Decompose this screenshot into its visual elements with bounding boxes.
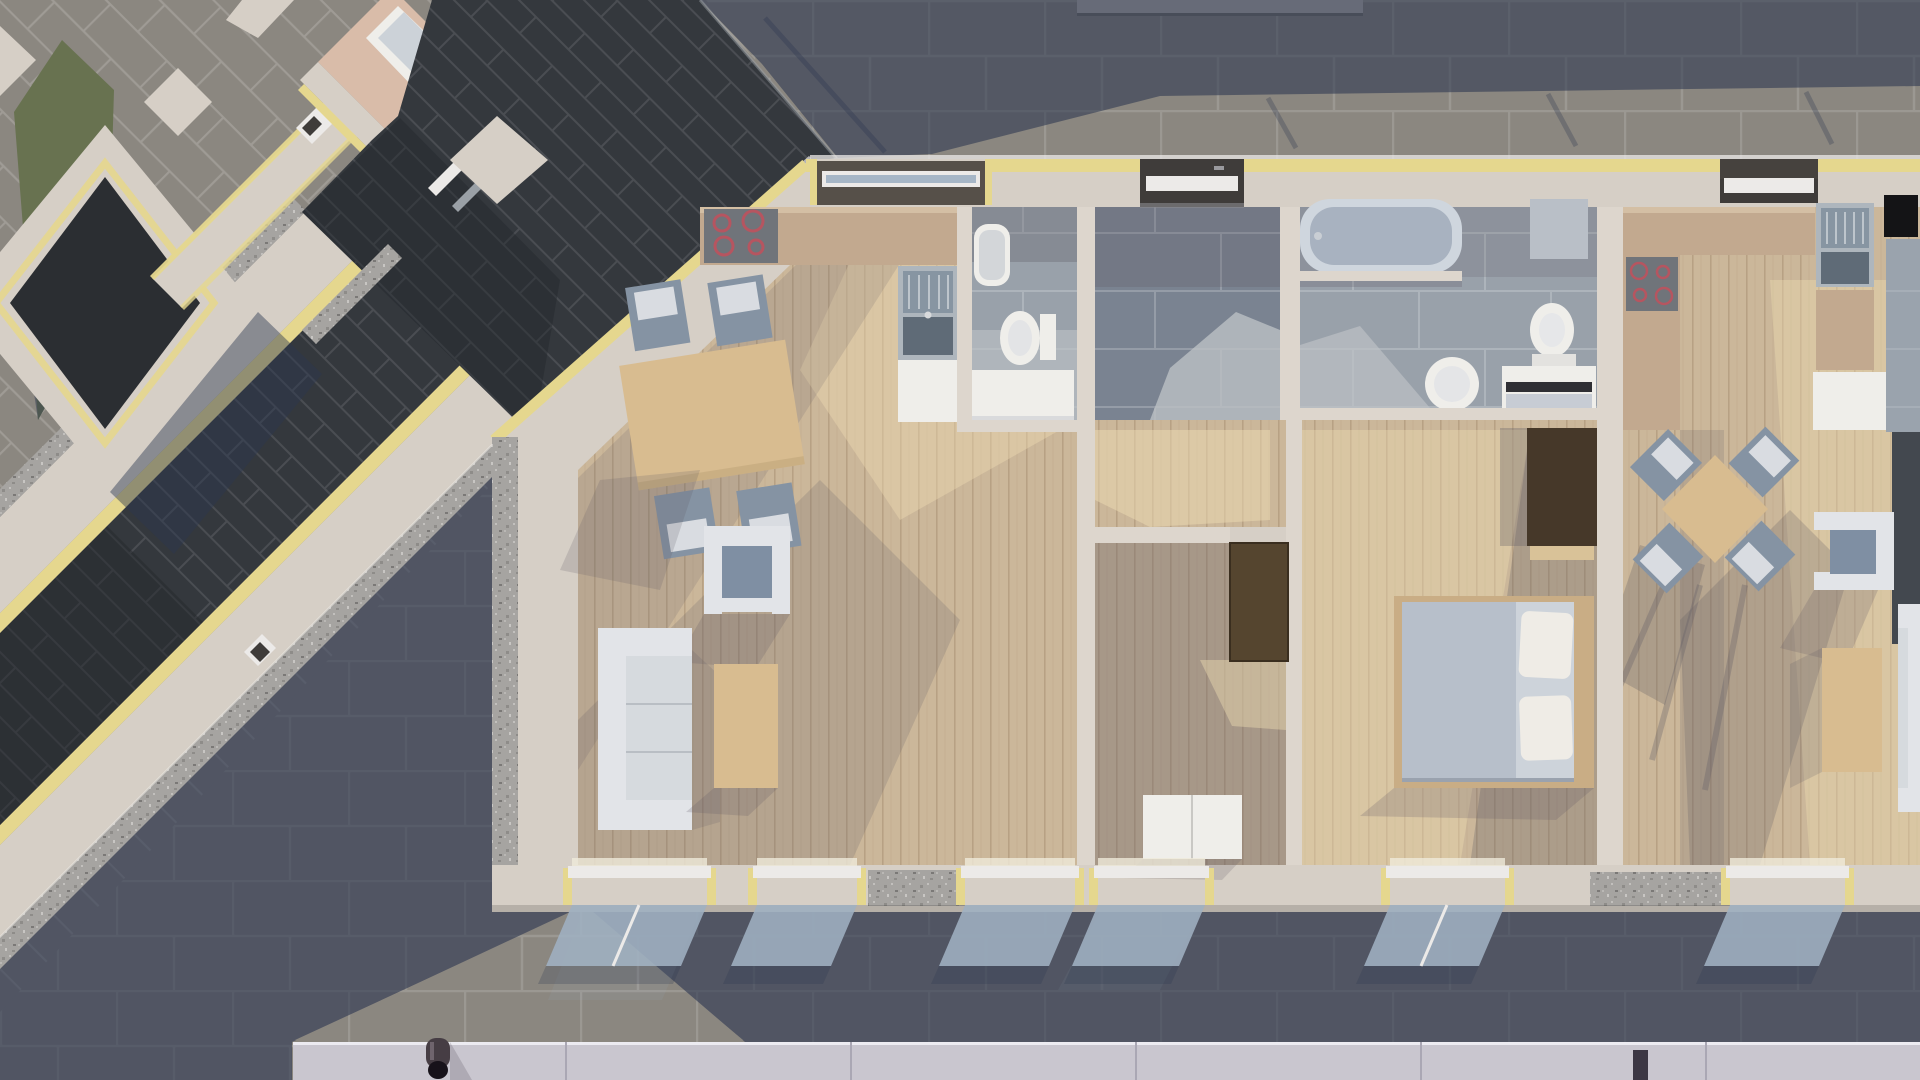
pillow bbox=[1519, 695, 1573, 761]
wall-bedroom-apartment bbox=[1597, 207, 1623, 865]
bathroom-small bbox=[972, 207, 1077, 424]
wall-bathroom-small bbox=[957, 207, 972, 432]
gutter-seam bbox=[850, 1042, 852, 1080]
downpipe-highlight bbox=[430, 1042, 434, 1060]
armchair-back bbox=[1876, 512, 1894, 590]
duvet-fold bbox=[1402, 778, 1574, 782]
gutter-seam bbox=[1705, 1042, 1707, 1080]
gutter-joint bbox=[1633, 1050, 1648, 1080]
armchair-front bbox=[722, 598, 772, 612]
pillow bbox=[1518, 611, 1573, 680]
wall-bathroom-small-south bbox=[960, 420, 1077, 432]
wall-apartment-divider bbox=[1077, 207, 1095, 865]
apartment-right bbox=[1598, 195, 1920, 865]
gutter-seam bbox=[1420, 1042, 1422, 1080]
insulation-strip bbox=[987, 159, 1140, 172]
wall-bathroom-main-south bbox=[1300, 408, 1597, 420]
floor-shadow bbox=[1095, 207, 1280, 287]
basin-bowl bbox=[1434, 366, 1470, 402]
sink-basin bbox=[1821, 252, 1869, 284]
bathtub-inner bbox=[1310, 207, 1452, 265]
granite-sill-section bbox=[868, 870, 965, 906]
coffee-table bbox=[1822, 648, 1882, 772]
window-jamb-insulation bbox=[810, 159, 817, 205]
closet-shelf bbox=[1530, 546, 1594, 560]
bathroom-vanity bbox=[972, 370, 1074, 424]
toilet-cistern bbox=[1040, 314, 1056, 360]
gutter bbox=[293, 1042, 1920, 1080]
closet-shadow bbox=[1500, 428, 1527, 546]
recess-reveal bbox=[1720, 159, 1818, 179]
toilet-seat bbox=[1008, 320, 1032, 356]
render-canvas bbox=[0, 0, 1920, 1080]
insulation-strip bbox=[1244, 159, 1720, 172]
gutter-strip bbox=[293, 1038, 1920, 1080]
window-frame bbox=[1724, 178, 1814, 193]
threshold bbox=[1140, 203, 1244, 208]
armchair-arm bbox=[704, 526, 722, 614]
granite-west-face bbox=[492, 437, 518, 865]
armchair-seat bbox=[1830, 530, 1876, 574]
floor-plan-render bbox=[0, 0, 1920, 1080]
side-room-tile-joints bbox=[1886, 239, 1920, 432]
base-cabinet bbox=[898, 360, 958, 422]
black-appliance bbox=[1884, 195, 1918, 237]
gutter-highlight bbox=[293, 1042, 1920, 1045]
armchair-seat bbox=[722, 546, 772, 602]
gutter-seam bbox=[565, 1042, 567, 1080]
coffee-table-shadow bbox=[1790, 648, 1822, 788]
counter-section bbox=[1816, 290, 1874, 370]
granite-sill-section bbox=[1590, 872, 1730, 906]
wall-hall-east bbox=[1280, 207, 1300, 420]
vanity-slot bbox=[1506, 382, 1592, 392]
counter-edge bbox=[1623, 207, 1815, 213]
coffee-table bbox=[714, 664, 778, 788]
bed-shadow bbox=[1360, 788, 1594, 820]
door-handle bbox=[1214, 166, 1224, 170]
faucet bbox=[925, 312, 932, 319]
corridor bbox=[1095, 420, 1286, 527]
basin-bowl bbox=[979, 230, 1005, 280]
built-in-closet bbox=[1527, 428, 1597, 546]
open-door-leaf bbox=[1230, 543, 1288, 661]
insulation-strip bbox=[1818, 159, 1920, 172]
tall-unit bbox=[1813, 372, 1893, 430]
double-bed bbox=[1360, 596, 1594, 820]
toilet-seat bbox=[1539, 313, 1565, 347]
gutter-seam bbox=[1135, 1042, 1137, 1080]
wall-cabinet bbox=[1530, 199, 1588, 259]
window-jamb-insulation bbox=[985, 159, 992, 205]
sofa-back bbox=[598, 628, 626, 830]
entrance-door-frame bbox=[1146, 176, 1238, 191]
downpipe-outlet bbox=[428, 1061, 448, 1079]
bathroom-main bbox=[1300, 199, 1597, 420]
bathtub-faucet bbox=[1314, 232, 1322, 240]
tub-shadow bbox=[1300, 281, 1462, 287]
wall-corridor-south bbox=[1095, 527, 1230, 543]
north-wall-cap bbox=[810, 155, 1920, 159]
sofa-cushions bbox=[626, 656, 692, 800]
window-glass bbox=[826, 175, 976, 183]
kitchen-counter bbox=[1623, 207, 1815, 255]
sunlight-patch bbox=[1095, 430, 1270, 527]
armchair-arm bbox=[772, 526, 790, 614]
bed-duvet bbox=[1402, 602, 1516, 782]
sofa-cushion-edge bbox=[1898, 628, 1908, 788]
tub-apron-wall bbox=[1300, 271, 1462, 281]
bedroom bbox=[1302, 420, 1597, 865]
sink-basin bbox=[903, 317, 953, 355]
